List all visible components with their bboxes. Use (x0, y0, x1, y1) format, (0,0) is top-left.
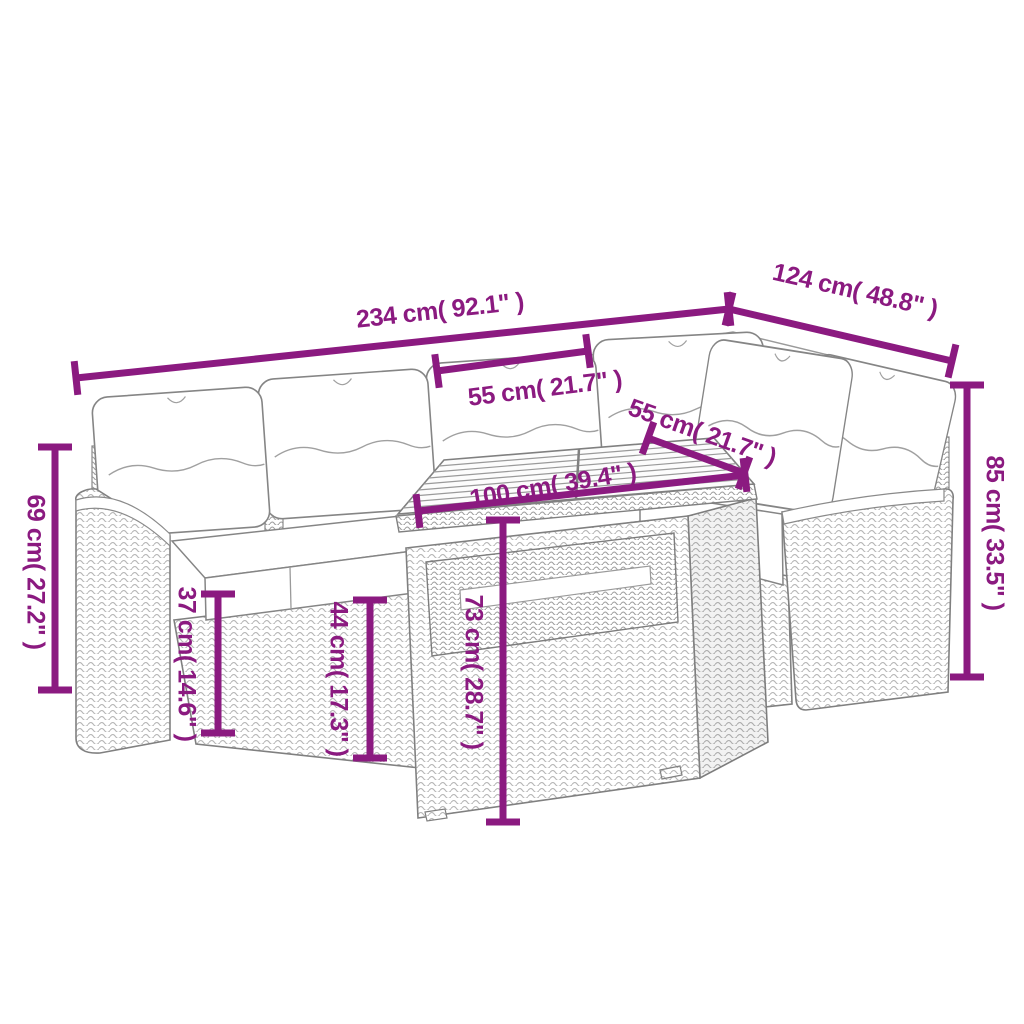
dimension-label-armrest-height: 69 cm( 27.2" ) (23, 495, 48, 650)
dim-line-back-height (950, 385, 984, 677)
furniture-illustration (0, 0, 1024, 1024)
dimension-label-table-height: 73 cm( 28.7" ) (461, 595, 486, 750)
dimension-diagram: 234 cm( 92.1" ) 124 cm( 48.8" ) 55 cm( 2… (0, 0, 1024, 1024)
dimension-label-back-height: 85 cm( 33.5" ) (982, 456, 1007, 611)
dimension-label-seat-height: 37 cm( 14.6" ) (174, 587, 199, 742)
left-armrest (76, 489, 170, 753)
back-cushion (257, 368, 436, 520)
dimension-label-seat-cushion-height: 44 cm( 17.3" ) (326, 602, 351, 757)
right-armrest (782, 489, 953, 710)
